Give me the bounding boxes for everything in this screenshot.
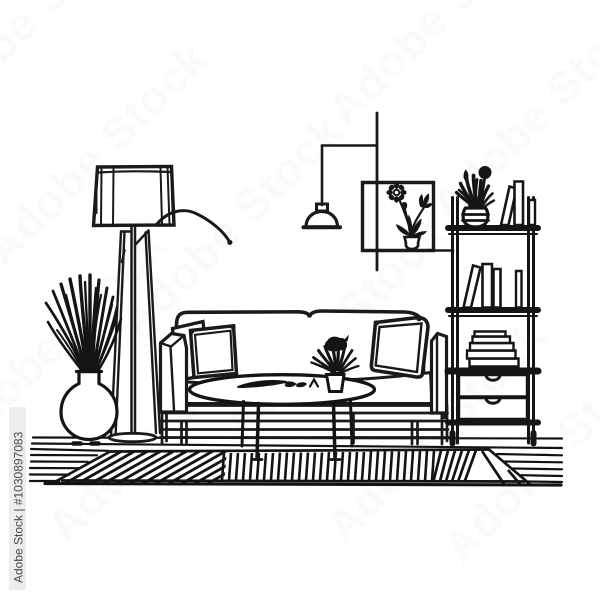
svg-text:Adobe Stock | #1030897083: Adobe Stock | #1030897083 [12, 431, 26, 583]
